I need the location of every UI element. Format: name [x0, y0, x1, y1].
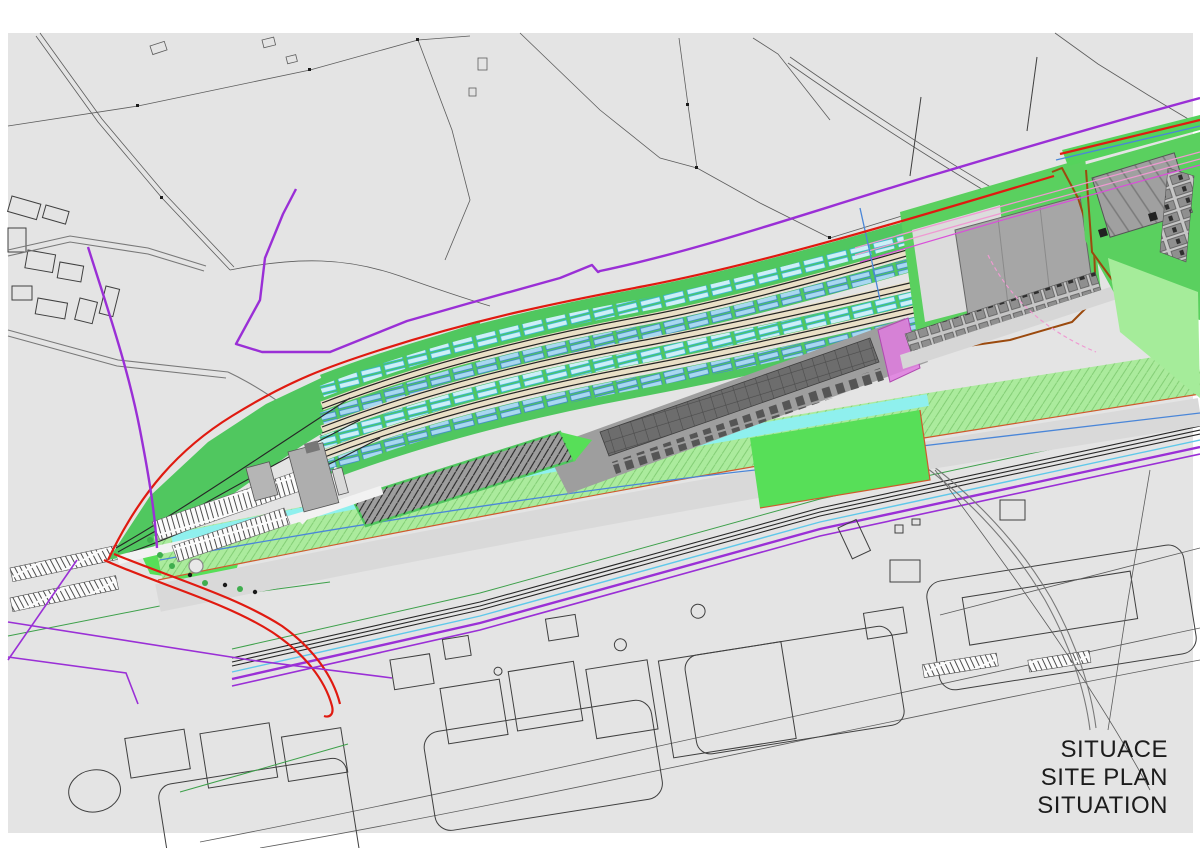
- site-plan-canvas: SITUACE SITE PLAN SITUATION: [0, 0, 1200, 848]
- title-line-3: SITUATION: [1037, 792, 1168, 819]
- site-plan-drawing: SITUACE SITE PLAN SITUATION: [0, 0, 1200, 848]
- title-line-2: SITE PLAN: [1041, 764, 1168, 791]
- roundabout: [189, 559, 203, 573]
- title-line-1: SITUACE: [1060, 736, 1168, 763]
